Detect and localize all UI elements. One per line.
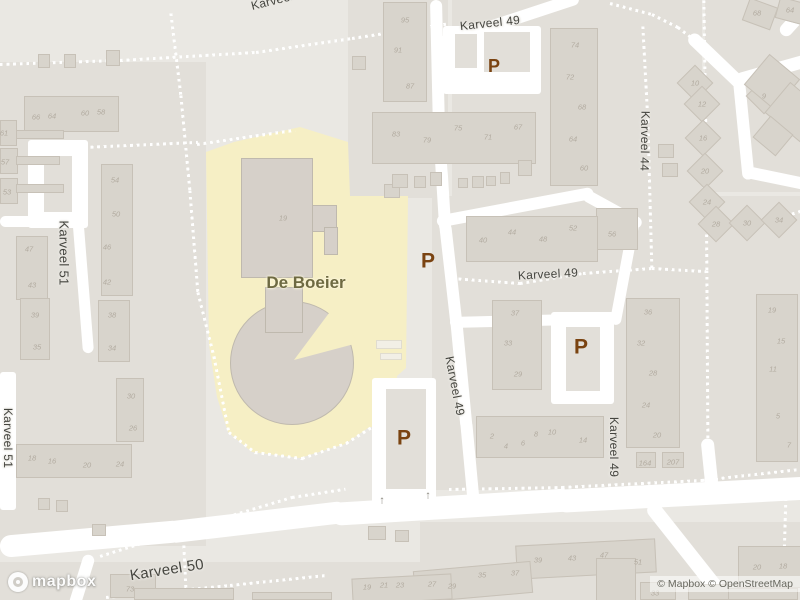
- house-number: 5: [776, 412, 780, 420]
- school-court: [376, 340, 402, 349]
- house-number: 28: [712, 220, 720, 228]
- building: [430, 172, 442, 186]
- house-number: 7: [787, 441, 791, 449]
- house-number: 71: [484, 133, 492, 141]
- house-number: 36: [644, 308, 652, 316]
- building: [392, 174, 408, 188]
- mapbox-logo[interactable]: mapbox: [8, 572, 96, 592]
- house-number: 54: [111, 176, 119, 184]
- house-number: 64: [48, 112, 56, 120]
- house-number: 64: [569, 135, 577, 143]
- mapbox-logo-text: mapbox: [32, 573, 96, 591]
- road: [329, 488, 574, 526]
- house-number: 67: [514, 123, 522, 131]
- house-number: 24: [116, 460, 124, 468]
- house-number: 47: [600, 551, 608, 559]
- parking-icon: P: [574, 337, 588, 358]
- house-number: 87: [406, 82, 414, 90]
- house-number: 91: [394, 46, 402, 54]
- building: [662, 163, 678, 177]
- building: [395, 530, 409, 542]
- footpath: [256, 36, 354, 53]
- house-number: 75: [454, 124, 462, 132]
- house-number: 26: [129, 424, 137, 432]
- footpath: [292, 487, 346, 498]
- street-label: Karveel 49: [518, 266, 579, 281]
- footpath: [120, 51, 258, 62]
- house-number: 42: [103, 278, 111, 286]
- house-number: 164: [639, 459, 652, 467]
- house-number: 34: [775, 216, 783, 224]
- house-number: 19: [363, 583, 371, 591]
- house-number: 34: [108, 344, 116, 352]
- house-number: 29: [448, 582, 456, 590]
- house-number: 47: [25, 245, 33, 253]
- house-number: 95: [401, 16, 409, 24]
- house-number: 40: [479, 236, 487, 244]
- poi-label-de-boeier: De Boeier: [266, 273, 345, 293]
- house-number: 60: [580, 164, 588, 172]
- building: [106, 50, 120, 66]
- house-number: 16: [699, 134, 707, 142]
- building: [658, 144, 674, 158]
- school-building: [241, 158, 313, 278]
- house-number: 23: [396, 581, 404, 589]
- school-court: [380, 353, 402, 360]
- house-number: 39: [31, 311, 39, 319]
- school-building: [324, 227, 338, 255]
- house-number: 38: [108, 311, 116, 319]
- house-number: 15: [777, 337, 785, 345]
- house-number: 207: [667, 458, 680, 466]
- house-number: 61: [0, 129, 8, 137]
- building: [56, 500, 68, 512]
- building: [518, 160, 532, 176]
- house-number: 11: [769, 365, 777, 373]
- house-number: 35: [33, 343, 41, 351]
- house-number: 10: [691, 79, 699, 87]
- house-number: 37: [511, 309, 519, 317]
- house-number: 24: [642, 401, 650, 409]
- building: [596, 558, 636, 600]
- house-number: 58: [97, 108, 105, 116]
- map-attribution[interactable]: © Mapbox © OpenStreetMap: [650, 576, 800, 592]
- house-number: 19: [768, 306, 776, 314]
- house-number: 32: [637, 339, 645, 347]
- house-number: 37: [511, 569, 519, 577]
- building: [486, 176, 496, 186]
- building: [458, 178, 468, 188]
- house-number: 79: [423, 136, 431, 144]
- house-number: 8: [534, 430, 538, 438]
- house-number: 4: [504, 442, 508, 450]
- house-number: 73: [126, 585, 134, 593]
- building: [352, 56, 366, 70]
- road: [0, 216, 43, 227]
- house-number: 68: [753, 9, 761, 17]
- street-label: Karveel 49: [608, 417, 620, 477]
- house-number: 56: [608, 230, 616, 238]
- building: [38, 498, 50, 510]
- house-number: 20: [753, 563, 761, 571]
- house-number: 16: [48, 457, 56, 465]
- oneway-arrow-icon: ↑: [425, 491, 431, 502]
- house-number: 20: [653, 431, 661, 439]
- building: [252, 592, 332, 600]
- house-number: 10: [548, 428, 556, 436]
- parking-icon: P: [488, 57, 500, 75]
- street-label: Karveel 44: [638, 111, 651, 172]
- house-number: 9: [762, 92, 766, 100]
- building: [596, 208, 638, 250]
- oneway-arrow-icon: ↑: [379, 496, 385, 507]
- parking-icon: P: [397, 428, 411, 449]
- map-canvas[interactable]: 6664605861575354504642474339383534302618…: [0, 0, 800, 600]
- building: [756, 294, 798, 462]
- house-number: 68: [578, 103, 586, 111]
- building: [92, 524, 106, 536]
- house-number: 43: [568, 554, 576, 562]
- house-number: 51: [634, 558, 642, 566]
- house-number: 24: [703, 198, 711, 206]
- house-number: 30: [743, 219, 751, 227]
- street-label: Karveel: [250, 0, 294, 12]
- house-number: 14: [579, 436, 587, 444]
- house-number: 46: [103, 243, 111, 251]
- house-number: 52: [569, 224, 577, 232]
- house-number: 66: [32, 113, 40, 121]
- house-number: 29: [514, 370, 522, 378]
- house-number: 72: [566, 73, 574, 81]
- road-island: [455, 34, 477, 68]
- house-number: 44: [508, 228, 516, 236]
- building: [16, 156, 60, 165]
- house-number: 83: [392, 130, 400, 138]
- building: [550, 28, 598, 186]
- house-number: 50: [112, 210, 120, 218]
- house-number: 60: [81, 109, 89, 117]
- mapbox-logo-icon: [8, 572, 28, 592]
- house-number: 74: [571, 41, 579, 49]
- house-number: 18: [779, 562, 787, 570]
- house-number: 2: [490, 432, 494, 440]
- building: [116, 378, 144, 442]
- house-number: 64: [786, 6, 794, 14]
- house-number: 53: [3, 188, 11, 196]
- building: [16, 184, 64, 193]
- house-number: 6: [521, 439, 525, 447]
- building: [414, 176, 426, 188]
- house-number: 21: [380, 581, 388, 589]
- building: [38, 54, 50, 68]
- house-number: 28: [649, 369, 657, 377]
- house-number: 19: [279, 214, 287, 222]
- house-number: 30: [127, 392, 135, 400]
- building: [472, 176, 484, 188]
- building: [134, 588, 234, 600]
- house-number: 12: [698, 100, 706, 108]
- house-number: 57: [1, 158, 9, 166]
- school-building: [265, 287, 303, 333]
- parking-icon: P: [421, 251, 435, 272]
- house-number: 18: [28, 454, 36, 462]
- house-number: 39: [534, 556, 542, 564]
- building: [16, 130, 64, 139]
- street-label: Karveel 51: [2, 408, 14, 468]
- house-number: 33: [504, 339, 512, 347]
- house-number: 43: [28, 281, 36, 289]
- street-label: Karveel 51: [58, 220, 71, 285]
- house-number: 48: [539, 235, 547, 243]
- building: [500, 172, 510, 184]
- house-number: 35: [478, 571, 486, 579]
- building: [64, 54, 76, 68]
- house-number: 27: [428, 580, 436, 588]
- house-number: 20: [701, 167, 709, 175]
- building: [368, 526, 386, 540]
- house-number: 20: [83, 461, 91, 469]
